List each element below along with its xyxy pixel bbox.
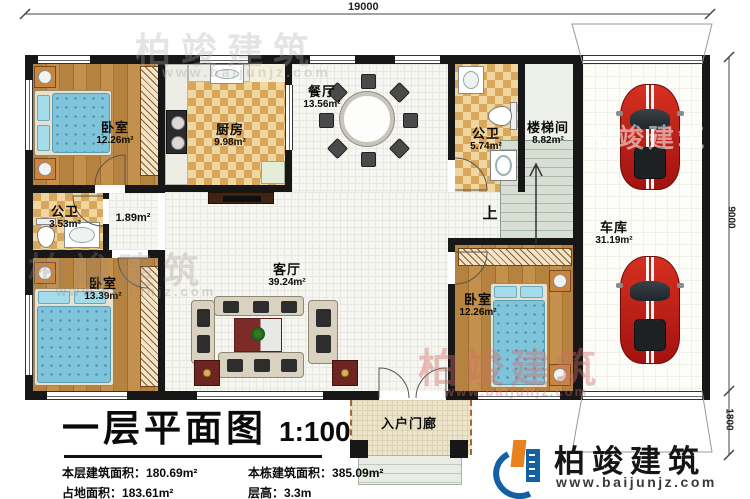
window bbox=[38, 55, 90, 64]
chair-icon bbox=[361, 152, 376, 167]
side-table-icon bbox=[194, 360, 220, 386]
room-area: 13.56m² bbox=[282, 99, 362, 111]
wall bbox=[702, 391, 710, 400]
nightstand-icon bbox=[34, 66, 56, 88]
nightstand-icon bbox=[549, 364, 571, 386]
room-label-kitchen: 厨房 9.98m² bbox=[190, 122, 270, 149]
chair-icon bbox=[403, 113, 418, 128]
room-label-bedroom-tl: 卧室 12.26m² bbox=[75, 120, 155, 147]
plant-icon bbox=[251, 327, 265, 341]
logo-tower-blue bbox=[526, 449, 540, 482]
wall bbox=[165, 185, 292, 192]
room-name: 楼梯间 bbox=[508, 120, 588, 135]
room-name: 厨房 bbox=[190, 122, 270, 137]
plan-stats: 本层建筑面积：180.69m² 本栋建筑面积：385.09m² 占地面积：183… bbox=[62, 464, 392, 499]
nightstand-icon bbox=[34, 262, 56, 284]
window bbox=[310, 55, 355, 64]
dimension-top: 19000 bbox=[348, 1, 379, 13]
room-area: 13.39m² bbox=[63, 291, 143, 303]
room-area: 39.24m² bbox=[247, 277, 327, 289]
room-name: 卧室 bbox=[438, 292, 518, 307]
brand-url: www.baijunjz.com bbox=[556, 474, 717, 490]
car-windshield bbox=[630, 109, 670, 129]
sofa-icon bbox=[191, 300, 215, 364]
room-label-bedroom-bl: 卧室 13.39m² bbox=[63, 276, 143, 303]
plan-scale: 1:100 bbox=[279, 416, 351, 447]
kitchen-sink-icon bbox=[210, 64, 244, 84]
wall bbox=[103, 224, 109, 250]
wall bbox=[158, 250, 165, 391]
wall bbox=[702, 55, 710, 400]
garage-door-top bbox=[583, 55, 702, 64]
room-area: 8.82m² bbox=[508, 135, 588, 147]
room-label-garage: 车库 31.19m² bbox=[574, 220, 654, 247]
wall bbox=[448, 238, 455, 252]
stove-icon bbox=[166, 110, 187, 154]
room-label-bedroom-br: 卧室 12.26m² bbox=[438, 292, 518, 319]
room-name: 客厅 bbox=[247, 262, 327, 277]
window bbox=[395, 55, 440, 64]
company-logo: 柏竣建筑 www.baijunjz.com bbox=[492, 436, 742, 496]
garage-door-bottom bbox=[583, 391, 702, 400]
room-label-bath-left: 公卫 3.53m² bbox=[28, 204, 102, 231]
wall bbox=[103, 193, 109, 199]
wall bbox=[25, 250, 112, 258]
car-icon bbox=[620, 84, 680, 190]
room-name: 公卫 bbox=[28, 204, 102, 219]
pillow-icon bbox=[37, 95, 50, 121]
wall bbox=[158, 55, 165, 192]
car-engine-cover bbox=[634, 147, 666, 179]
room-name: 车库 bbox=[574, 220, 654, 235]
room-area: 12.26m² bbox=[75, 135, 155, 147]
wardrobe-icon bbox=[140, 266, 160, 387]
wall bbox=[25, 185, 95, 193]
dimension-right-lower: 1800 bbox=[724, 408, 735, 430]
tv-cabinet-icon bbox=[208, 192, 274, 204]
washing-machine-icon bbox=[490, 150, 517, 181]
burner-icon bbox=[171, 116, 185, 130]
plan-title: 一层平面图 bbox=[62, 408, 267, 449]
window bbox=[25, 295, 33, 375]
fridge-icon bbox=[261, 161, 285, 184]
car-engine-cover bbox=[634, 319, 666, 351]
room-area: 1.89m² bbox=[100, 212, 166, 225]
hallway-area-label: 1.89m² bbox=[100, 212, 166, 225]
room-label-dining: 餐厅 13.56m² bbox=[282, 84, 362, 111]
sofa-icon bbox=[218, 352, 304, 378]
title-underline bbox=[64, 455, 322, 458]
room-label-living: 客厅 39.24m² bbox=[247, 262, 327, 289]
car-icon bbox=[620, 256, 680, 364]
tv-icon bbox=[223, 196, 261, 202]
dimension-right-main: 9000 bbox=[726, 206, 737, 228]
stairs-up-label: 上 bbox=[480, 205, 500, 223]
chair-icon bbox=[319, 113, 334, 128]
room-area: 31.19m² bbox=[574, 235, 654, 247]
room-name: 餐厅 bbox=[282, 84, 362, 99]
wall bbox=[448, 238, 583, 245]
room-area: 3.53m² bbox=[28, 219, 102, 231]
car-windshield bbox=[630, 281, 670, 301]
title-block: 一层平面图1:100 本层建筑面积：180.69m² 本栋建筑面积：385.09… bbox=[62, 398, 392, 499]
nightstand-icon bbox=[549, 270, 571, 292]
bathroom-sink-icon bbox=[458, 66, 484, 94]
chair-icon bbox=[361, 74, 376, 89]
stat-floor-area: 本层建筑面积：180.69m² bbox=[62, 464, 242, 481]
room-name: 卧室 bbox=[63, 276, 143, 291]
window bbox=[478, 391, 560, 400]
logo-icon bbox=[492, 440, 544, 492]
burner-icon bbox=[171, 136, 185, 150]
room-area: 12.26m² bbox=[438, 307, 518, 319]
room-area: 9.98m² bbox=[190, 137, 270, 149]
window bbox=[200, 55, 248, 64]
porch-column bbox=[450, 440, 468, 458]
nightstand-icon bbox=[34, 158, 56, 180]
pillow-icon bbox=[37, 125, 50, 151]
sofa-icon bbox=[308, 300, 338, 364]
bed-mattress bbox=[37, 306, 111, 383]
wardrobe-icon bbox=[458, 248, 572, 266]
plan-title-row: 一层平面图1:100 bbox=[62, 398, 392, 452]
window bbox=[25, 80, 33, 150]
stat-total-area: 本栋建筑面积：385.09m² bbox=[248, 464, 392, 481]
floor-plan-canvas: 19000 9000 1800 卧室 12.26m² 厨房 9.98m² 餐厅 … bbox=[0, 0, 750, 499]
side-table-icon bbox=[332, 360, 358, 386]
room-label-stairwell: 楼梯间 8.82m² bbox=[508, 120, 588, 147]
sofa-icon bbox=[214, 296, 304, 316]
room-name: 卧室 bbox=[75, 120, 155, 135]
wall bbox=[125, 185, 165, 193]
pillow-icon bbox=[520, 286, 543, 298]
wall bbox=[285, 55, 292, 85]
stat-footprint: 占地面积：183.61m² bbox=[62, 484, 242, 499]
stat-floor-height: 层高：3.3m bbox=[248, 484, 392, 499]
